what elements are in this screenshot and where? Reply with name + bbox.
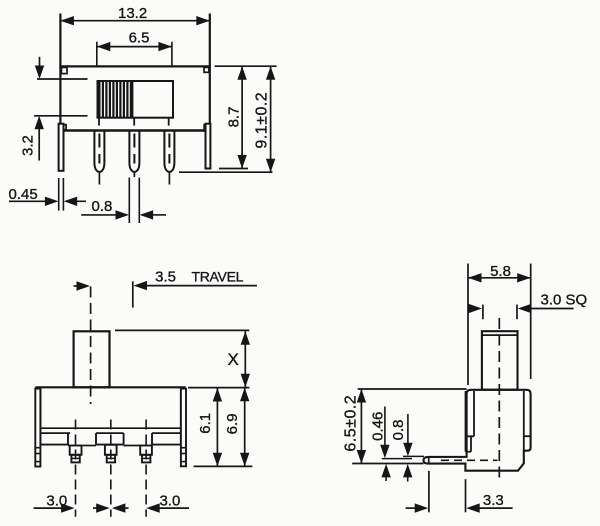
svg-text:0.45: 0.45 bbox=[9, 186, 38, 203]
svg-text:3.3: 3.3 bbox=[483, 492, 504, 509]
svg-text:3.0: 3.0 bbox=[159, 492, 180, 509]
svg-text:3.5: 3.5 bbox=[155, 268, 176, 285]
svg-text:3.0: 3.0 bbox=[46, 493, 67, 510]
svg-text:6.1: 6.1 bbox=[197, 413, 214, 434]
svg-text:3.2: 3.2 bbox=[19, 135, 36, 156]
svg-text:0.8: 0.8 bbox=[92, 198, 113, 215]
svg-text:0.46: 0.46 bbox=[369, 412, 386, 441]
svg-text:13.2: 13.2 bbox=[118, 5, 147, 22]
svg-text:6.5±0.2: 6.5±0.2 bbox=[343, 395, 360, 452]
svg-text:8.7: 8.7 bbox=[225, 107, 242, 128]
svg-text:0.8: 0.8 bbox=[390, 420, 407, 441]
svg-text:6.5: 6.5 bbox=[129, 30, 150, 47]
svg-text:6.9: 6.9 bbox=[224, 413, 241, 434]
svg-text:X: X bbox=[228, 350, 239, 369]
svg-text:TRAVEL: TRAVEL bbox=[192, 269, 244, 285]
svg-text:5.8: 5.8 bbox=[490, 263, 511, 280]
svg-text:3.0 SQ: 3.0 SQ bbox=[541, 291, 588, 308]
svg-text:9.1±0.2: 9.1±0.2 bbox=[254, 92, 271, 149]
